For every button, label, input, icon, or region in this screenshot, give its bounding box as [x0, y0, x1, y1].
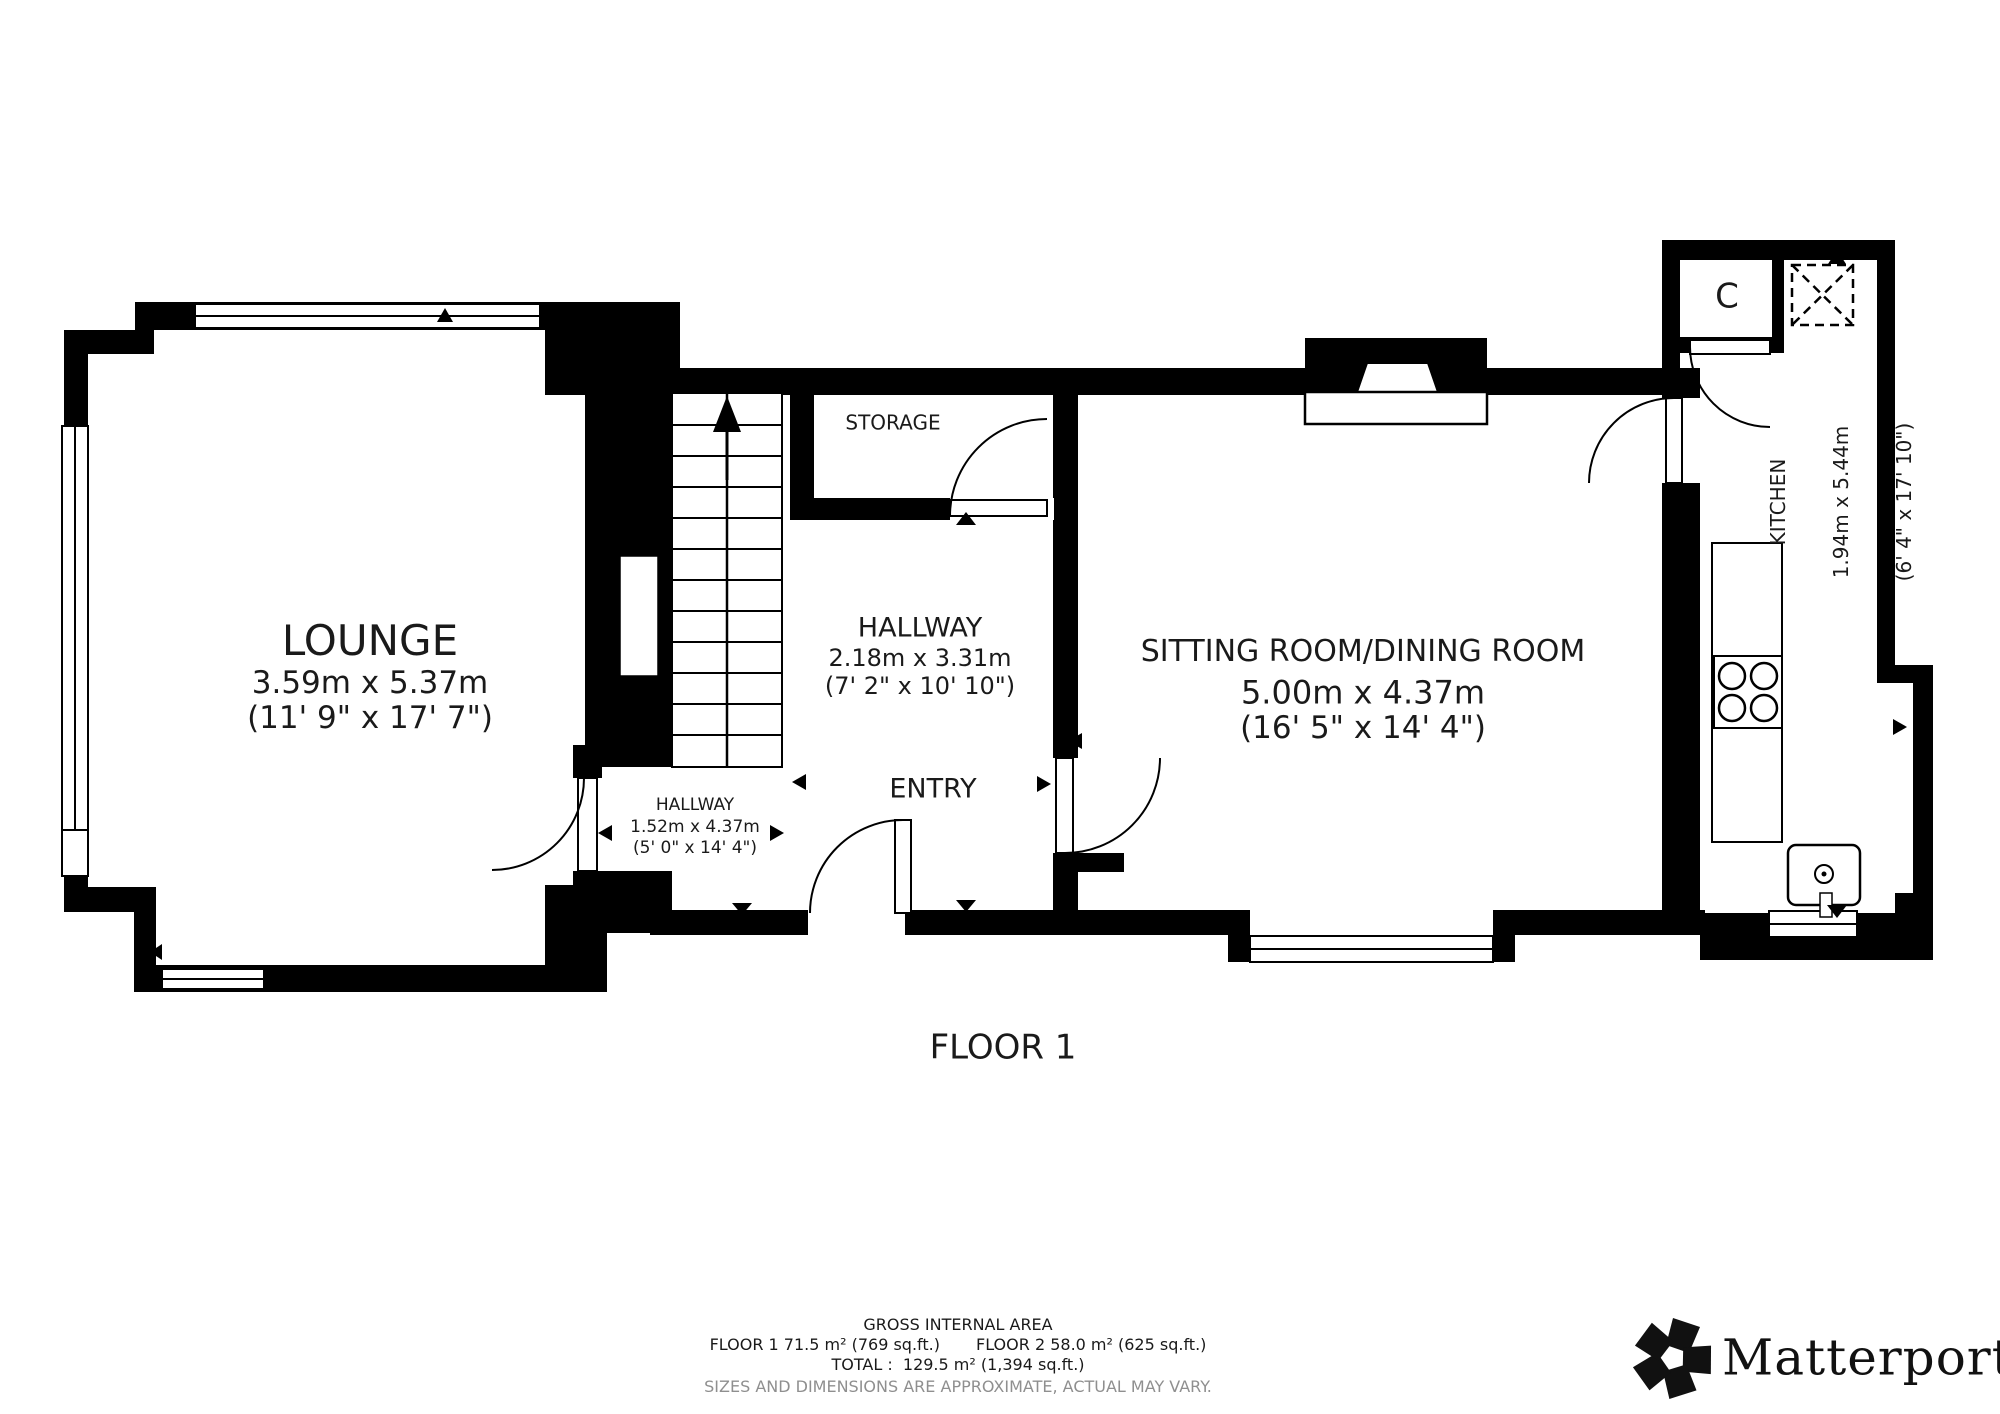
matterport-logo-icon	[1628, 1318, 1720, 1406]
entry-label: ENTRY	[889, 773, 976, 804]
radiator	[620, 556, 658, 676]
footer-disclaimer: SIZES AND DIMENSIONS ARE APPROXIMATE, AC…	[704, 1377, 1212, 1396]
kitchen-window	[1769, 911, 1857, 937]
lounge-label: LOUNGE	[282, 617, 458, 665]
sitting-label: SITTING ROOM/DINING ROOM	[1141, 635, 1586, 670]
hallway-main-imperial: (7' 2" x 10' 10")	[825, 673, 1015, 701]
sink	[1788, 845, 1860, 917]
footer-total: TOTAL : 129.5 m² (1,394 sq.ft.)	[831, 1355, 1084, 1374]
roof-light-symbol	[1792, 265, 1853, 325]
footer-floor2-area: FLOOR 2 58.0 m² (625 sq.ft.)	[976, 1335, 1206, 1354]
sitting-metric: 5.00m x 4.37m	[1241, 675, 1485, 712]
hallway-small-imperial: (5' 0" x 14' 4")	[633, 839, 757, 859]
lounge-door	[492, 778, 597, 871]
lounge-bottom-window	[162, 969, 264, 989]
kitchen-label-block: KITCHEN 1.94m x 5.44m (6' 4" x 17' 10")	[1728, 423, 1936, 582]
floor-title: FLOOR 1	[930, 1028, 1077, 1067]
storage-door	[950, 419, 1047, 516]
entry-sitting-door	[1056, 758, 1160, 853]
footer-floor1-area: FLOOR 1 71.5 m² (769 sq.ft.)	[710, 1335, 940, 1354]
closet-label: C	[1715, 277, 1739, 316]
kitchen-imperial: (6' 4" x 17' 10")	[1892, 423, 1917, 582]
lounge-imperial: (11' 9" x 17' 7")	[247, 701, 493, 737]
kitchen-door	[1589, 398, 1682, 483]
footer-areas: FLOOR 1 71.5 m² (769 sq.ft.)FLOOR 2 58.0…	[710, 1335, 1207, 1354]
sitting-imperial: (16' 5" x 14' 4")	[1240, 711, 1486, 747]
sitting-bay-window	[1250, 936, 1493, 962]
kitchen-label: KITCHEN	[1766, 423, 1791, 582]
hallway-main-label: HALLWAY	[858, 612, 982, 643]
lounge-left-window	[62, 426, 88, 876]
brand-text: Matterport	[1722, 1329, 2000, 1387]
direction-markers	[150, 250, 1907, 960]
hallway-small-metric: 1.52m x 4.37m	[630, 818, 760, 838]
stove	[1714, 656, 1782, 728]
floorplan-page: LOUNGE 3.59m x 5.37m (11' 9" x 17' 7") S…	[0, 0, 2000, 1414]
closet-door	[1690, 340, 1770, 427]
lounge-metric: 3.59m x 5.37m	[252, 666, 489, 702]
hallway-small-label: HALLWAY	[656, 796, 734, 816]
kitchen-metric: 1.94m x 5.44m	[1829, 423, 1854, 582]
matterport-wordmark: Matterport®	[1722, 1329, 2000, 1387]
kitchen-fixtures	[1712, 543, 1860, 917]
front-door	[810, 820, 911, 913]
lounge-top-window	[195, 304, 540, 328]
footer-title: GROSS INTERNAL AREA	[863, 1315, 1052, 1334]
storage-label: STORAGE	[845, 412, 940, 435]
hallway-main-metric: 2.18m x 3.31m	[828, 645, 1011, 673]
